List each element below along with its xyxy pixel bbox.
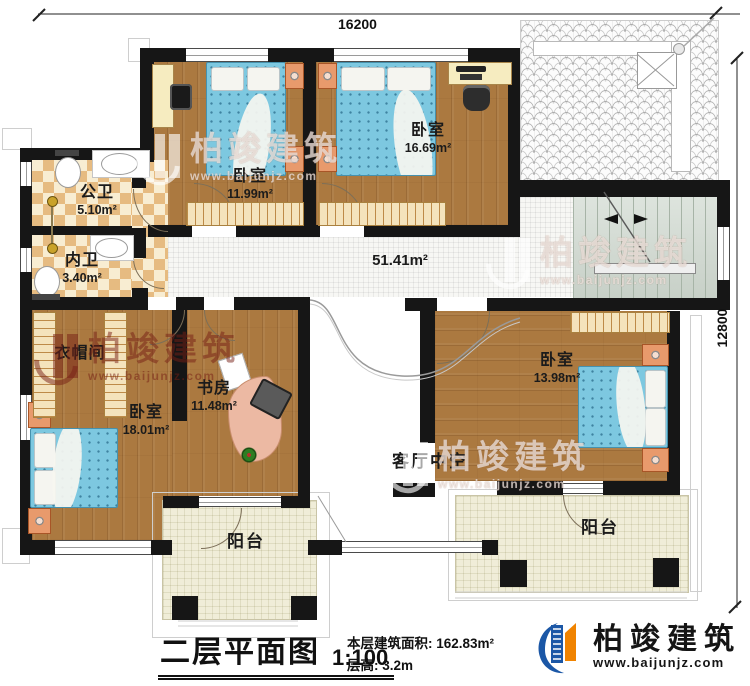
keyboard-icon [460,74,482,80]
wall-segment [281,496,310,508]
room-label-balcony-left: 阳台 [211,532,281,552]
balcony-pillar [291,596,317,620]
brand-name: 柏竣建筑 [593,624,741,656]
roof-vent [673,43,685,55]
stair-rail [594,263,696,274]
office-chair-icon [463,85,490,111]
roof-skylight [637,52,677,89]
room-label-cloakroom: 衣帽间 [45,345,115,364]
wall-segment [497,481,563,495]
wall-segment [308,540,342,555]
towel-rail [51,201,53,247]
room-label-bedroom1: 卧室 11.99m² [205,168,295,202]
wall-segment [482,540,498,555]
floor-plan-canvas: 16200 12800 公卫 5.10m² 内卫 3.40m² 卧室 11.99… [0,0,750,686]
door-opening [148,297,176,310]
window [20,162,32,186]
wall-segment [298,309,310,496]
plan-title: 二层平面图 [160,627,320,671]
wall-segment [303,48,316,237]
wall-segment [420,311,435,443]
window [20,248,32,272]
plan-info: 本层建筑面积: 162.83m² 层高: 3.2m [347,633,494,676]
wardrobe [318,202,446,226]
window [55,540,151,555]
brand-logo: 柏竣建筑 www.baijunjz.com [531,616,741,678]
balcony-door-glass [199,497,281,507]
brand-mark-icon [531,616,587,678]
nightstand [642,344,669,366]
balcony-pillar [172,596,198,620]
void-railing-window [342,541,482,553]
right-eave-line [690,315,702,592]
window [717,227,730,280]
toilet-tank [55,150,79,156]
nightstand [318,146,337,172]
room-label-bedroom4: 卧室 13.98m² [512,352,602,386]
wardrobe [570,312,670,333]
balcony-pillar [500,560,527,587]
wall-segment [603,481,680,495]
room-label-living-void: 客厅中空 [375,452,485,472]
wardrobe [186,202,304,226]
window [186,48,268,62]
nightstand [318,63,337,89]
wall-segment [393,483,435,497]
wardrobe [104,312,127,418]
towel-rail-knob [47,196,58,207]
wardrobe [33,312,56,418]
room-label-balcony-right: 阳台 [565,518,635,538]
top-left-eave [2,128,32,150]
sink-icon [101,153,138,175]
wall-segment [717,197,730,227]
plant-icon [240,446,258,464]
stair-lobby-floor [520,197,573,297]
room-label-bedroom2: 卧室 16.69m² [383,122,473,156]
room-label-corridor: 51.41m² [350,252,450,270]
floor-area-line: 本层建筑面积: 162.83m² [347,633,494,655]
door-opening [437,298,487,311]
nightstand [28,508,51,534]
dimension-right: 12800 [714,298,730,358]
wall-segment [163,496,199,508]
room-label-public-bath: 公卫 5.10m² [64,184,130,218]
nightstand [285,63,304,89]
wall-segment [508,180,730,197]
wall-segment [487,298,620,311]
room-label-study: 书房 11.48m² [169,380,259,414]
room-label-inner-bath: 内卫 3.40m² [49,252,115,286]
brand-website: www.baijunjz.com [593,655,741,670]
bed [206,62,286,176]
door-opening [192,225,236,237]
window [334,48,468,62]
balcony-pillar [653,558,679,587]
nightstand [642,448,669,472]
wall-segment [508,197,520,237]
balcony-door-glass [563,483,603,494]
bed [30,428,118,508]
staircase [573,197,717,298]
toilet-tank [32,294,60,300]
bed [336,62,436,176]
wall-segment [405,298,437,311]
wall-segment [132,228,146,258]
dimension-top: 16200 [338,16,377,32]
tv-icon [170,84,192,110]
door-opening [320,225,364,237]
wall-segment [20,226,132,235]
laptop-icon [456,66,486,72]
floor-height-line: 层高: 3.2m [347,655,494,677]
door-opening [204,297,234,310]
